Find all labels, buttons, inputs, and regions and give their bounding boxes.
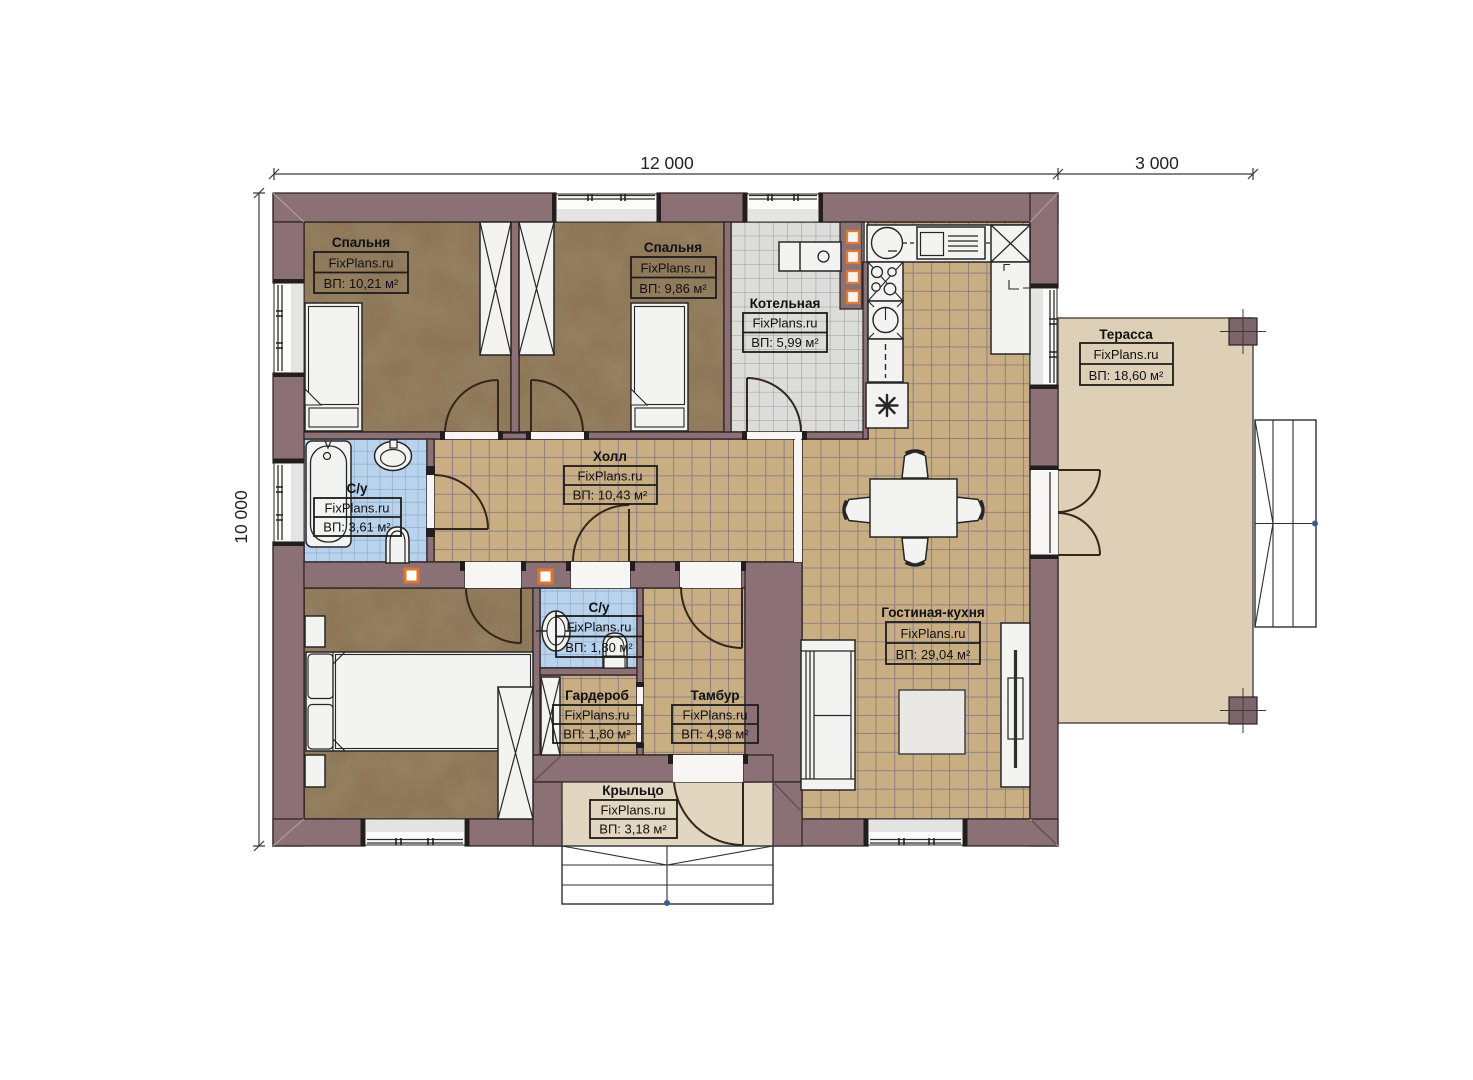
svg-text:Котельная: Котельная (750, 296, 821, 311)
svg-text:12 000: 12 000 (640, 153, 694, 173)
svg-text:FixPlans.ru: FixPlans.ru (328, 256, 393, 271)
svg-text:ВП: 9,86 м²: ВП: 9,86 м² (639, 281, 707, 296)
svg-text:ВП: 5,99 м²: ВП: 5,99 м² (751, 335, 819, 350)
svg-text:FixPlans.ru: FixPlans.ru (577, 469, 642, 484)
svg-text:3 000: 3 000 (1135, 153, 1179, 173)
svg-text:ВП: 4,98 м²: ВП: 4,98 м² (681, 727, 749, 742)
svg-text:ВП: 18,60 м²: ВП: 18,60 м² (1089, 368, 1164, 383)
svg-text:FixPlans.ru: FixPlans.ru (324, 501, 389, 516)
svg-text:FixPlans.ru: FixPlans.ru (1093, 347, 1158, 362)
svg-text:FixPlans.ru: FixPlans.ru (900, 626, 965, 641)
svg-text:С/у: С/у (346, 481, 368, 496)
svg-text:ВП: 1,80 м²: ВП: 1,80 м² (565, 640, 633, 655)
svg-text:FixPlans.ru: FixPlans.ru (682, 708, 747, 723)
svg-text:FixPlans.ru: FixPlans.ru (600, 803, 665, 818)
svg-text:ВП: 3,61 м²: ВП: 3,61 м² (323, 520, 391, 535)
svg-text:С/у: С/у (588, 600, 610, 615)
svg-text:ВП: 10,43 м²: ВП: 10,43 м² (573, 488, 648, 503)
svg-text:Гардероб: Гардероб (565, 688, 629, 703)
svg-text:ВП: 29,04 м²: ВП: 29,04 м² (896, 647, 971, 662)
svg-text:ВП: 1,80 м²: ВП: 1,80 м² (563, 727, 631, 742)
svg-text:ВП: 3,18 м²: ВП: 3,18 м² (599, 822, 667, 837)
svg-text:FixPlans.ru: FixPlans.ru (564, 708, 629, 723)
svg-text:Спальня: Спальня (332, 235, 390, 250)
svg-text:Холл: Холл (593, 449, 627, 464)
svg-text:10 000: 10 000 (231, 490, 251, 544)
svg-text:Тамбур: Тамбур (691, 688, 740, 703)
svg-text:ВП: 10,21 м²: ВП: 10,21 м² (324, 276, 399, 291)
svg-text:Крыльцо: Крыльцо (602, 783, 663, 798)
svg-text:FixPlans.ru: FixPlans.ru (752, 316, 817, 331)
svg-text:Спальня: Спальня (644, 240, 702, 255)
svg-text:FixPlans.ru: FixPlans.ru (640, 261, 705, 276)
svg-text:Терасса: Терасса (1099, 327, 1153, 342)
svg-text:FixPlans.ru: FixPlans.ru (566, 620, 631, 635)
svg-text:Гостиная-кухня: Гостиная-кухня (881, 605, 984, 620)
